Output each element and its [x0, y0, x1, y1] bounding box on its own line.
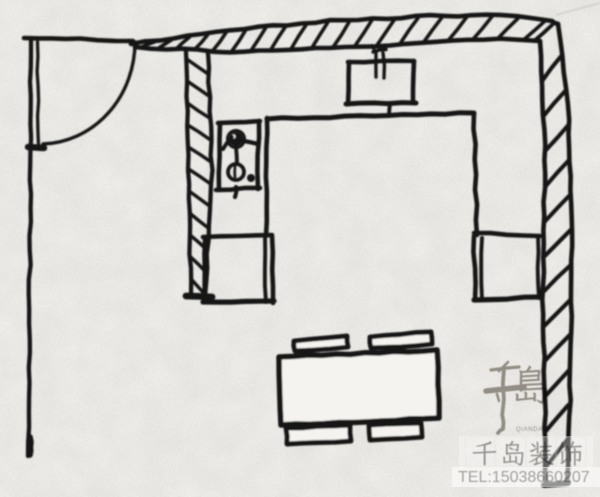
svg-text:TEL:15038660207: TEL:15038660207	[458, 469, 590, 486]
svg-text:QIANDAO: QIANDAO	[516, 426, 548, 433]
